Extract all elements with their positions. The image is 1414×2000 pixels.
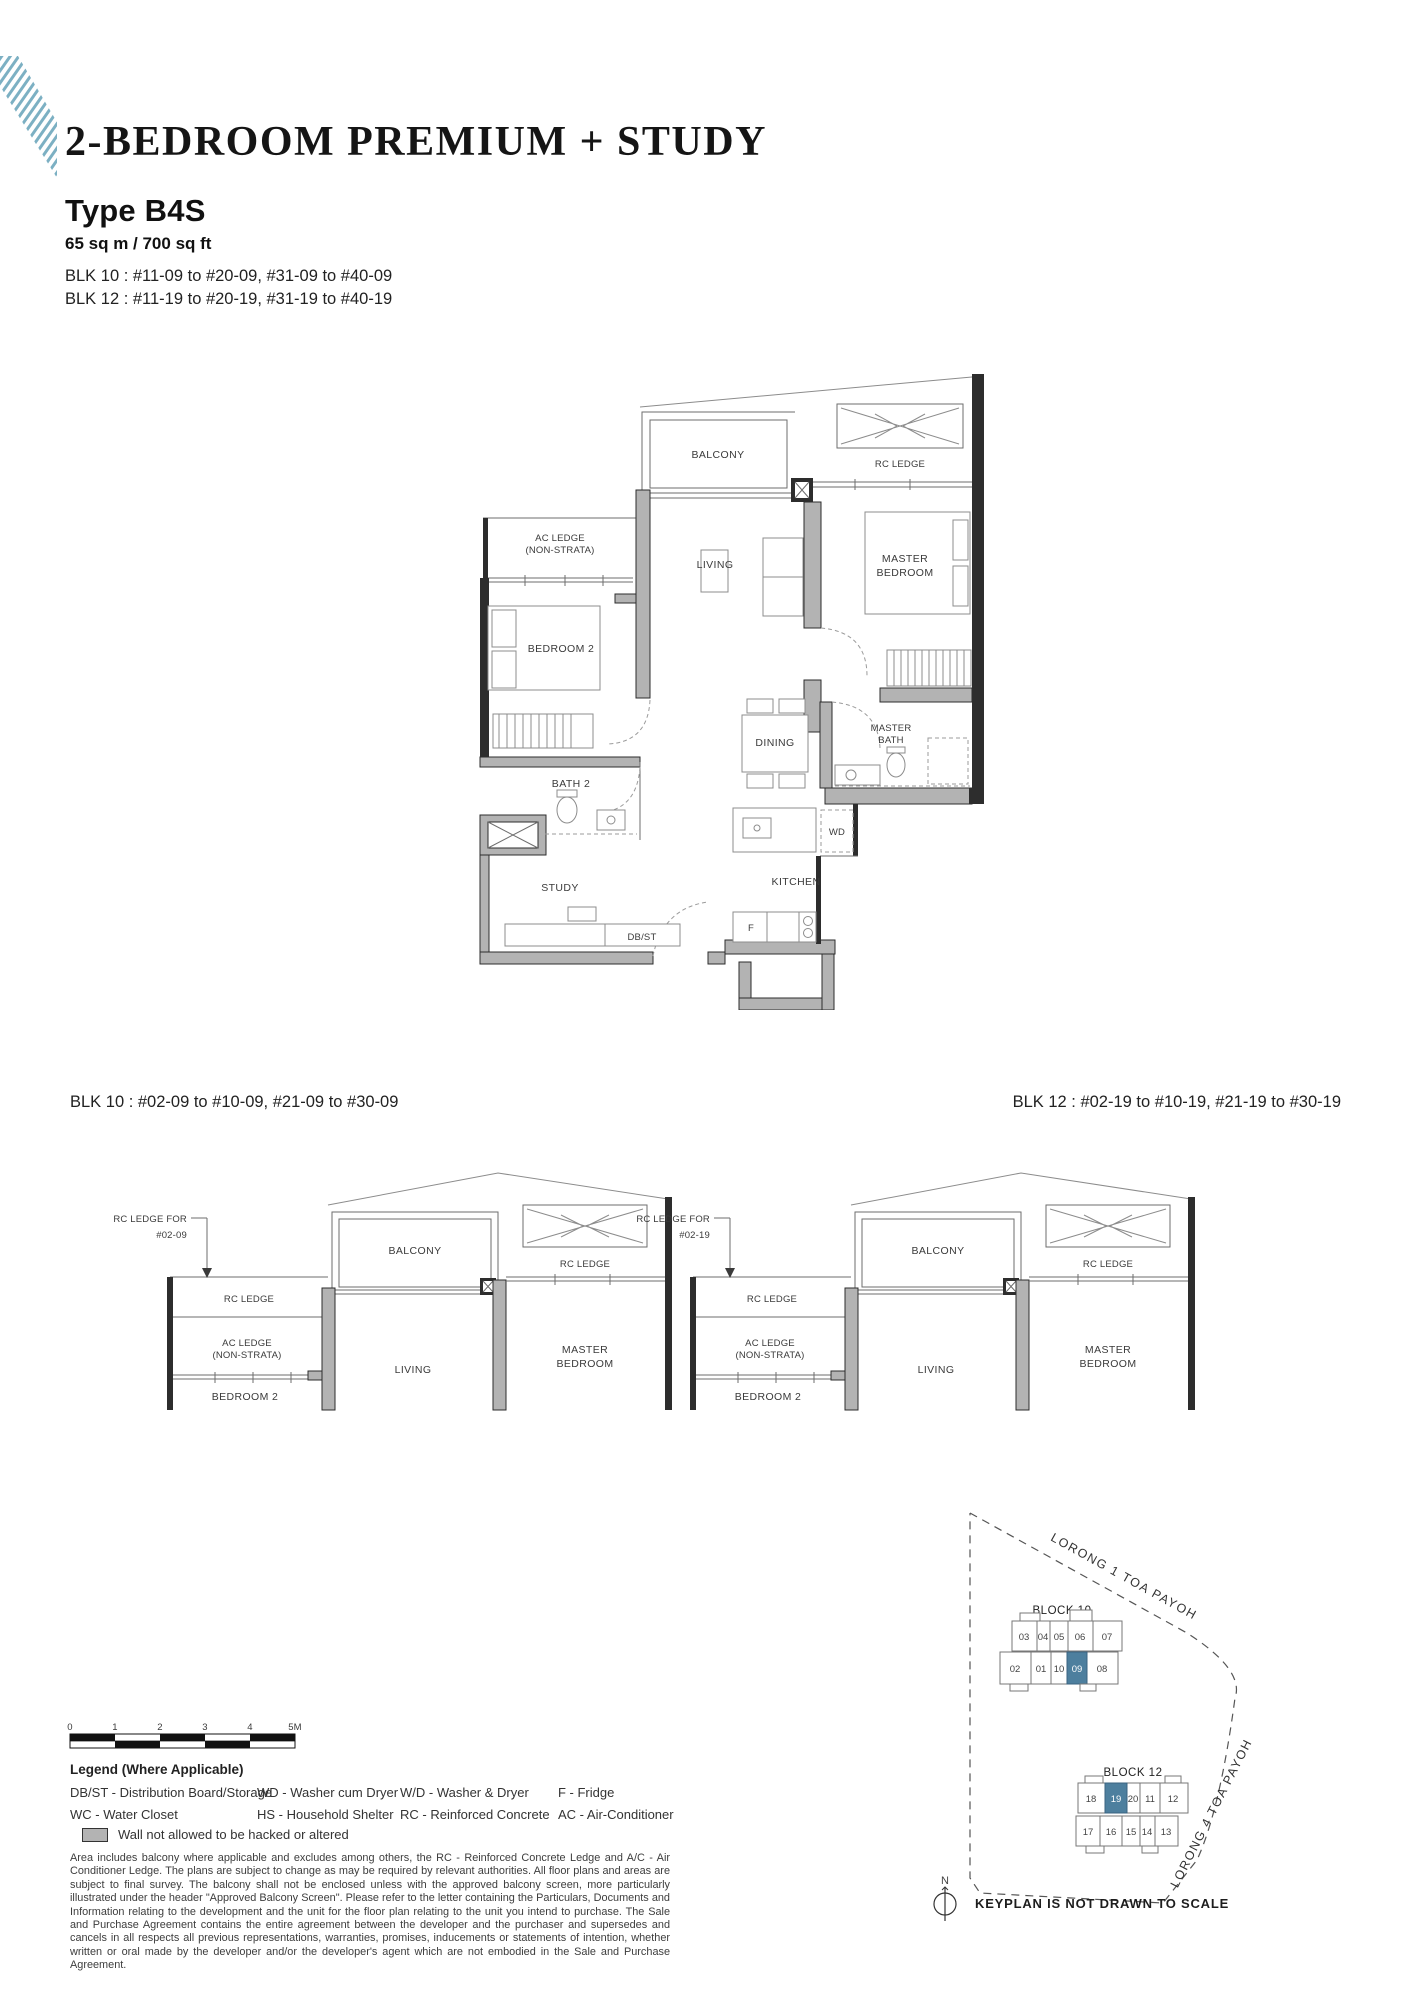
block10-footprint (1000, 1610, 1122, 1691)
pp-left-rc-ledge: RC LEDGE (224, 1294, 274, 1305)
brand-logo-stripes-icon (0, 56, 58, 184)
keyplan: LORONG 1 TOA PAYOH LORONG 4 TOA PAYOH BL… (750, 1480, 1380, 2000)
ac-tie-wall (615, 594, 636, 603)
north-compass-icon: N (934, 1875, 956, 1921)
pp-right-rc-for-1: RC LEDGE FOR (636, 1214, 710, 1225)
pp-right-balcony: BALCONY (912, 1245, 965, 1257)
unit-10-06: 06 (1075, 1632, 1086, 1643)
unit-12-12: 12 (1168, 1794, 1179, 1805)
pp-left-mbr-1: MASTER (562, 1344, 608, 1356)
legend-item: RC - Reinforced Concrete (400, 1804, 550, 1826)
pp-right-rc-for-2: #02-19 (679, 1230, 710, 1241)
entry-jamb (708, 952, 725, 964)
pp-left-rc-for-2: #02-09 (156, 1230, 187, 1241)
pp-left-ac-2: (NON-STRATA) (212, 1350, 281, 1361)
mbr-window (813, 479, 972, 490)
scale-tick-1: 1 (112, 1722, 117, 1733)
study-west-wall (480, 855, 489, 964)
pp-right-living: LIVING (918, 1364, 955, 1376)
unit-10-04: 04 (1038, 1632, 1049, 1643)
caption-blk12: BLK 12 : #02-19 to #10-19, #21-19 to #30… (1013, 1093, 1341, 1112)
unit-12-16: 16 (1106, 1827, 1117, 1838)
label-master-bedroom-1: MASTER (882, 553, 928, 565)
label-ac-ledge-2: (NON-STRATA) (525, 545, 594, 556)
bath2-fixtures (545, 790, 637, 834)
pp-right-bedroom2: BEDROOM 2 (735, 1391, 802, 1403)
label-bedroom2: BEDROOM 2 (528, 643, 595, 655)
unit-12-15: 15 (1126, 1827, 1137, 1838)
wall-swatch (82, 1828, 108, 1842)
label-study: STUDY (541, 882, 579, 894)
scale-tick-3: 3 (202, 1722, 207, 1733)
unit-10-01: 01 (1036, 1664, 1047, 1675)
bedroom2-door-arc (608, 700, 650, 744)
unit-area-label: 65 sq m / 700 sq ft (65, 234, 211, 254)
partial-plan-blk12: RC LEDGE FOR #02-19 RC LEDGE AC LEDGE (N… (618, 1165, 1198, 1415)
unit-10-09-highlighted: 09 (1072, 1664, 1083, 1675)
scale-bar: 0 1 2 3 4 5M (66, 1720, 306, 1752)
pp-right-rc-ledge-right: RC LEDGE (1083, 1259, 1133, 1270)
unit-12-13: 13 (1161, 1827, 1172, 1838)
lobby-east-wall (822, 954, 834, 1010)
page-title: 2-BEDROOM PREMIUM + STUDY (65, 118, 767, 166)
living-furniture (701, 538, 803, 616)
disclaimer-text: Area includes balcony where applicable a… (70, 1852, 670, 1973)
legend-title: Legend (Where Applicable) (70, 1762, 244, 1777)
label-master-bath-2: BATH (878, 735, 903, 746)
unit-10-03: 03 (1019, 1632, 1030, 1643)
unit-10-08: 08 (1097, 1664, 1108, 1675)
bedroom2-south-wall (480, 757, 640, 767)
pp-right-ac-1: AC LEDGE (745, 1338, 795, 1349)
compass-n-label: N (941, 1875, 949, 1887)
unit-10-05: 05 (1054, 1632, 1065, 1643)
label-dining: DINING (755, 737, 794, 749)
mbr-west-wall-upper (804, 502, 821, 628)
pp-left-ac-1: AC LEDGE (222, 1338, 272, 1349)
mbath-south-wall (825, 788, 972, 804)
unit-12-19-highlighted: 19 (1111, 1794, 1122, 1805)
legend-item: F - Fridge (558, 1782, 614, 1804)
unit-12-20: 20 (1128, 1794, 1139, 1805)
bedroom2-window (488, 575, 633, 586)
scale-tick-4: 4 (247, 1722, 252, 1733)
mbath-west-wall (820, 702, 832, 788)
label-dbst: DB/ST (628, 932, 657, 943)
label-kitchen: KITCHEN (772, 876, 821, 888)
mbr-furniture (865, 512, 971, 686)
pp-left-mbr-2: BEDROOM (556, 1358, 613, 1370)
legend-item: W/D - Washer & Dryer (400, 1782, 529, 1804)
ac-ledge-wall (483, 518, 488, 580)
pp-right-rc-ledge: RC LEDGE (747, 1294, 797, 1305)
unit-12-17: 17 (1083, 1827, 1094, 1838)
label-fridge: F (748, 923, 754, 934)
unit-10-10: 10 (1054, 1664, 1065, 1675)
label-rc-ledge: RC LEDGE (875, 459, 925, 470)
bedroom2-furniture (488, 606, 600, 748)
right-wall (972, 374, 984, 804)
keyplan-note: KEYPLAN IS NOT DRAWN TO SCALE (975, 1896, 1229, 1911)
pp-left-balcony: BALCONY (389, 1245, 442, 1257)
mbr-door-arc (821, 628, 867, 676)
unit-12-11: 11 (1145, 1794, 1155, 1805)
label-master-bedroom-2: BEDROOM (876, 567, 933, 579)
mbath-north-wall (880, 688, 972, 702)
legend-item: DB/ST - Distribution Board/Storage (70, 1782, 272, 1804)
blk-line-2: BLK 12 : #11-19 to #20-19, #31-19 to #40… (65, 288, 392, 311)
legend-item: WD - Washer cum Dryer (257, 1782, 398, 1804)
pp-left-rc-ledge-right: RC LEDGE (560, 1259, 610, 1270)
scale-tick-2: 2 (157, 1722, 162, 1733)
scale-tick-0: 0 (67, 1722, 72, 1733)
caption-blk10: BLK 10 : #02-09 to #10-09, #21-09 to #30… (70, 1093, 398, 1112)
label-master-bath-1: MASTER (871, 723, 912, 734)
unit-10-07: 07 (1102, 1632, 1113, 1643)
pp-left-rc-for-1: RC LEDGE FOR (113, 1214, 187, 1225)
pp-right-ac-2: (NON-STRATA) (735, 1350, 804, 1361)
block12-footprint (1076, 1776, 1188, 1853)
label-balcony: BALCONY (692, 449, 745, 461)
kitchen-east-wall-upper (853, 804, 858, 856)
unit-10-02: 02 (1010, 1664, 1021, 1675)
scale-tick-5: 5M (288, 1722, 302, 1733)
lobby-south-wall (739, 998, 834, 1010)
unit-12-14: 14 (1142, 1827, 1153, 1838)
rc-column (791, 478, 813, 502)
blk-line-1: BLK 10 : #11-09 to #20-09, #31-09 to #40… (65, 265, 392, 288)
block12-label: BLOCK 12 (1104, 1767, 1163, 1779)
floorplan-page: 2-BEDROOM PREMIUM + STUDY Type B4S 65 sq… (0, 0, 1414, 2000)
bath2-door-arc (599, 767, 640, 813)
pp-right-mbr-1: MASTER (1085, 1344, 1131, 1356)
kitchen-east-wall-lower (816, 856, 821, 944)
pp-left-bedroom2: BEDROOM 2 (212, 1391, 279, 1403)
pp-right-mbr-2: BEDROOM (1079, 1358, 1136, 1370)
label-living: LIVING (697, 559, 734, 571)
mbath-corner (969, 788, 984, 804)
legend-item: HS - Household Shelter (257, 1804, 394, 1826)
living-west-wall (636, 490, 650, 698)
legend-item: AC - Air-Conditioner (558, 1804, 674, 1826)
rc-ledge-deck (837, 404, 963, 448)
pp-left-living: LIVING (395, 1364, 432, 1376)
main-floorplan: BALCONY RC LEDGE AC LEDGE (NON-STRATA) L… (375, 310, 995, 1010)
unit-12-18: 18 (1086, 1794, 1097, 1805)
wall-note: Wall not allowed to be hacked or altered (118, 1827, 349, 1842)
unit-type-label: Type B4S (65, 193, 206, 229)
strata-line (640, 376, 983, 407)
legend-item: WC - Water Closet (70, 1804, 178, 1826)
label-bath2: BATH 2 (552, 778, 590, 790)
study-south-wall (480, 952, 653, 964)
bath2-shaft (480, 815, 546, 855)
label-ac-ledge-1: AC LEDGE (535, 533, 585, 544)
partial-plan-blk10: RC LEDGE FOR #02-09 RC LEDGE AC LEDGE (N… (95, 1165, 675, 1415)
label-wd: WD (829, 827, 845, 838)
